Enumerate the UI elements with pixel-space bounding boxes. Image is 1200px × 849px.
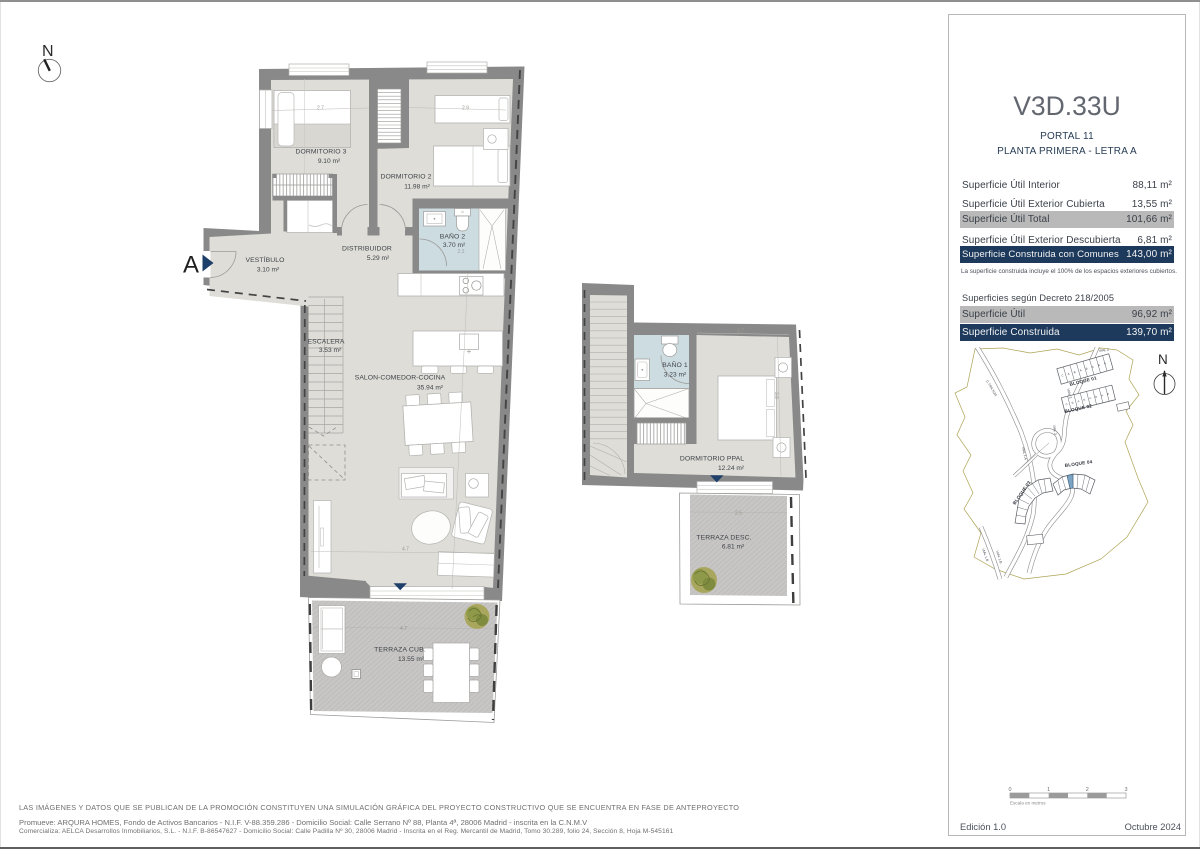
svg-text:9.10 m²: 9.10 m²	[318, 158, 341, 165]
svg-text:TERRAZA CUB.: TERRAZA CUB.	[374, 647, 426, 654]
svg-text:2.3: 2.3	[458, 249, 465, 255]
svg-text:A: A	[183, 252, 199, 279]
svg-text:Escala en metros: Escala en metros	[1010, 801, 1046, 806]
svg-text:5.29 m²: 5.29 m²	[367, 255, 390, 262]
svg-text:12.24 m²: 12.24 m²	[718, 465, 745, 472]
svg-text:VIAL 2: VIAL 2	[1099, 348, 1110, 353]
svg-text:N: N	[42, 43, 54, 60]
svg-text:11.98 m²: 11.98 m²	[404, 184, 430, 191]
svg-text:TERRAZA DESC.: TERRAZA DESC.	[696, 535, 751, 542]
svg-text:13.55 m²: 13.55 m²	[398, 656, 425, 663]
svg-text:DISTRIBUIDOR: DISTRIBUIDOR	[342, 246, 392, 253]
svg-text:BAÑO 1: BAÑO 1	[662, 360, 688, 369]
svg-text:6.81 m²: 6.81 m²	[722, 544, 745, 551]
svg-text:DORMITORIO 3: DORMITORIO 3	[296, 149, 347, 156]
svg-text:ESCALERA: ESCALERA	[307, 339, 344, 346]
svg-text:2.7: 2.7	[737, 329, 744, 335]
svg-text:2.5: 2.5	[735, 511, 742, 517]
svg-text:BAÑO 2: BAÑO 2	[440, 232, 466, 241]
svg-text:2: 2	[1086, 787, 1089, 793]
svg-text:BLOQUE 04: BLOQUE 04	[1064, 459, 1093, 468]
svg-text:SALON-COMEDOR-COCINA: SALON-COMEDOR-COCINA	[355, 375, 446, 382]
svg-text:N: N	[1158, 352, 1168, 367]
svg-text:1: 1	[1047, 787, 1050, 793]
svg-text:3.70 m²: 3.70 m²	[443, 242, 466, 249]
svg-text:DORMITORIO PPAL: DORMITORIO PPAL	[680, 456, 744, 463]
svg-text:4.7: 4.7	[400, 626, 407, 632]
svg-text:35.94 m²: 35.94 m²	[417, 385, 444, 392]
svg-text:4.7: 4.7	[402, 547, 409, 553]
svg-text:3.23 m²: 3.23 m²	[664, 372, 687, 379]
svg-text:0: 0	[1008, 787, 1011, 793]
svg-text:3.10 m²: 3.10 m²	[257, 267, 280, 274]
svg-text:VESTÍBULO: VESTÍBULO	[245, 255, 284, 264]
svg-text:2.9: 2.9	[462, 106, 469, 112]
svg-text:3: 3	[1124, 787, 1127, 793]
svg-text:3.53 m²: 3.53 m²	[319, 347, 342, 354]
svg-text:3.8: 3.8	[773, 392, 779, 399]
svg-text:2.7: 2.7	[317, 106, 324, 112]
svg-text:DORMITORIO 2: DORMITORIO 2	[381, 174, 432, 181]
